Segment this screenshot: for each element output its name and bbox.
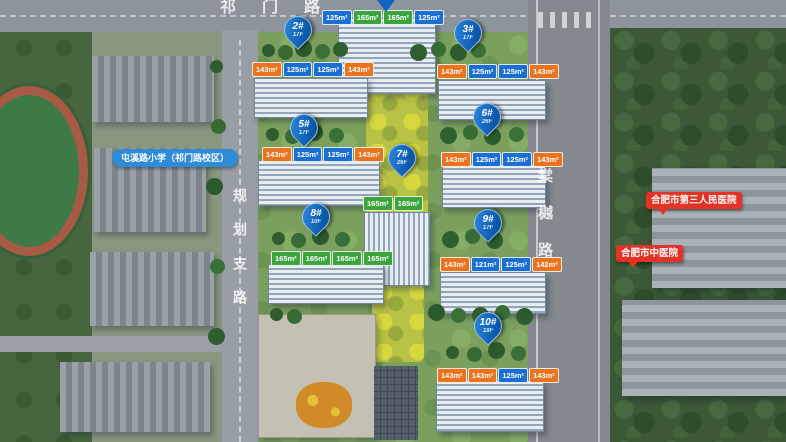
building-number-label: 8# xyxy=(310,209,321,219)
area-tag-row-3: 143m²125m²125m²143m² xyxy=(437,64,559,79)
area-tag-row-7: 165m²165m² xyxy=(363,196,423,211)
road-name-left: 规划支路 xyxy=(230,188,250,324)
building-number-label: 3# xyxy=(462,25,473,35)
unit-area-tag: 143m² xyxy=(344,62,374,77)
hospital-label-2: 合肥市中医院 xyxy=(616,245,683,262)
hospital-building xyxy=(622,300,786,396)
building-marker-content: 6#26F xyxy=(474,104,500,130)
kindergarten-playground xyxy=(296,382,352,428)
tree-belt xyxy=(270,308,283,321)
building-floors-label: 26F xyxy=(482,119,492,126)
unit-area-tag: 165m² xyxy=(383,10,413,25)
unit-area-tag: 125m² xyxy=(468,64,498,79)
residential-building-9 xyxy=(440,272,546,314)
building-number-label: 6# xyxy=(481,109,492,119)
residential-building-6 xyxy=(442,164,546,208)
unit-area-tag: 125m² xyxy=(472,152,502,167)
area-tag-row-8: 165m²165m²165m²165m² xyxy=(271,251,393,266)
site-plan-rendering: 祁门路 规划支路 棠樾路 屯溪路小学（祁门路校区） 合肥市第三人民医院 合肥市中… xyxy=(0,0,786,442)
building-number-label: 5# xyxy=(298,120,309,130)
building-marker-content: 3#17F xyxy=(455,20,481,46)
tree-belt xyxy=(446,346,459,359)
unit-area-tag: 143m² xyxy=(529,64,559,79)
unit-area-tag: 165m² xyxy=(394,196,424,211)
unit-area-tag: 143m² xyxy=(437,64,467,79)
area-tag-row-1: 125m²165m²165m²125m² xyxy=(322,10,444,25)
unit-area-tag: 143m² xyxy=(533,152,563,167)
building-floors-label: 17F xyxy=(463,35,473,42)
crosswalk xyxy=(538,12,598,28)
unit-area-tag: 143m² xyxy=(440,257,470,272)
tree-belt xyxy=(210,60,223,73)
area-tag-row-10: 143m²143m²125m²143m² xyxy=(437,368,559,383)
school-label: 屯溪路小学（祁门路校区） xyxy=(112,149,238,167)
residential-building-8 xyxy=(268,264,384,304)
residential-building-2 xyxy=(254,78,368,118)
building-number-label: 2# xyxy=(292,22,303,32)
neighbor-building xyxy=(60,362,210,432)
unit-area-tag: 165m² xyxy=(271,251,301,266)
area-tag-row-2: 143m²125m²125m²143m² xyxy=(252,62,374,77)
unit-area-tag: 165m² xyxy=(363,251,393,266)
unit-area-tag: 165m² xyxy=(332,251,362,266)
unit-area-tag: 143m² xyxy=(252,62,282,77)
unit-area-tag: 125m² xyxy=(498,64,528,79)
building-floors-label: 17F xyxy=(293,32,303,39)
building-number-label: 7# xyxy=(396,150,407,160)
tree-belt xyxy=(272,232,285,245)
unit-area-tag: 165m² xyxy=(302,251,332,266)
building-marker-content: 9#17F xyxy=(475,210,501,236)
unit-area-tag: 143m² xyxy=(468,368,498,383)
building-marker-content: 7#26F xyxy=(389,145,415,171)
utility-building xyxy=(374,366,418,440)
unit-area-tag: 125m² xyxy=(502,152,532,167)
hospital-label-tail xyxy=(628,261,638,268)
building-floors-label: 26F xyxy=(397,160,407,167)
building-floors-label: 18F xyxy=(483,328,493,335)
tree-belt xyxy=(262,44,275,57)
unit-area-tag: 125m² xyxy=(293,147,323,162)
unit-area-tag: 125m² xyxy=(323,147,353,162)
area-tag-row-5: 143m²125m²125m²143m² xyxy=(262,147,384,162)
area-tag-row-9: 143m²121m²125m²142m² xyxy=(440,257,562,272)
building-number-label: 9# xyxy=(482,215,493,225)
building-marker-partial xyxy=(377,0,395,12)
building-marker-content: 5#17F xyxy=(291,115,317,141)
unit-area-tag: 125m² xyxy=(313,62,343,77)
building-marker-content: 2#17F xyxy=(285,17,311,43)
side-street xyxy=(0,336,222,352)
unit-area-tag: 121m² xyxy=(471,257,501,272)
building-floors-label: 17F xyxy=(299,130,309,137)
neighbor-building xyxy=(92,56,214,122)
unit-area-tag: 125m² xyxy=(322,10,352,25)
hospital-label-tail xyxy=(658,208,668,215)
unit-area-tag: 125m² xyxy=(498,368,528,383)
unit-area-tag: 125m² xyxy=(414,10,444,25)
unit-area-tag: 143m² xyxy=(437,368,467,383)
building-floors-label: 10F xyxy=(311,219,321,226)
building-marker-content: 8#10F xyxy=(303,204,329,230)
neighbor-building xyxy=(90,252,214,326)
building-marker-content: 10#18F xyxy=(475,313,501,339)
unit-area-tag: 142m² xyxy=(532,257,562,272)
unit-area-tag: 143m² xyxy=(441,152,471,167)
unit-area-tag: 143m² xyxy=(529,368,559,383)
residential-building-5 xyxy=(258,160,380,206)
area-tag-row-6: 143m²125m²125m²143m² xyxy=(441,152,563,167)
hospital-building xyxy=(652,168,786,288)
unit-area-tag: 165m² xyxy=(363,196,393,211)
building-number-label: 10# xyxy=(480,318,497,328)
road-marking xyxy=(598,0,600,442)
unit-area-tag: 143m² xyxy=(262,147,292,162)
unit-area-tag: 143m² xyxy=(354,147,384,162)
tree-belt xyxy=(266,128,279,141)
unit-area-tag: 125m² xyxy=(283,62,313,77)
residential-building-10 xyxy=(436,380,544,432)
unit-area-tag: 165m² xyxy=(353,10,383,25)
unit-area-tag: 125m² xyxy=(501,257,531,272)
building-floors-label: 17F xyxy=(483,225,493,232)
hospital-label-1: 合肥市第三人民医院 xyxy=(646,192,742,209)
